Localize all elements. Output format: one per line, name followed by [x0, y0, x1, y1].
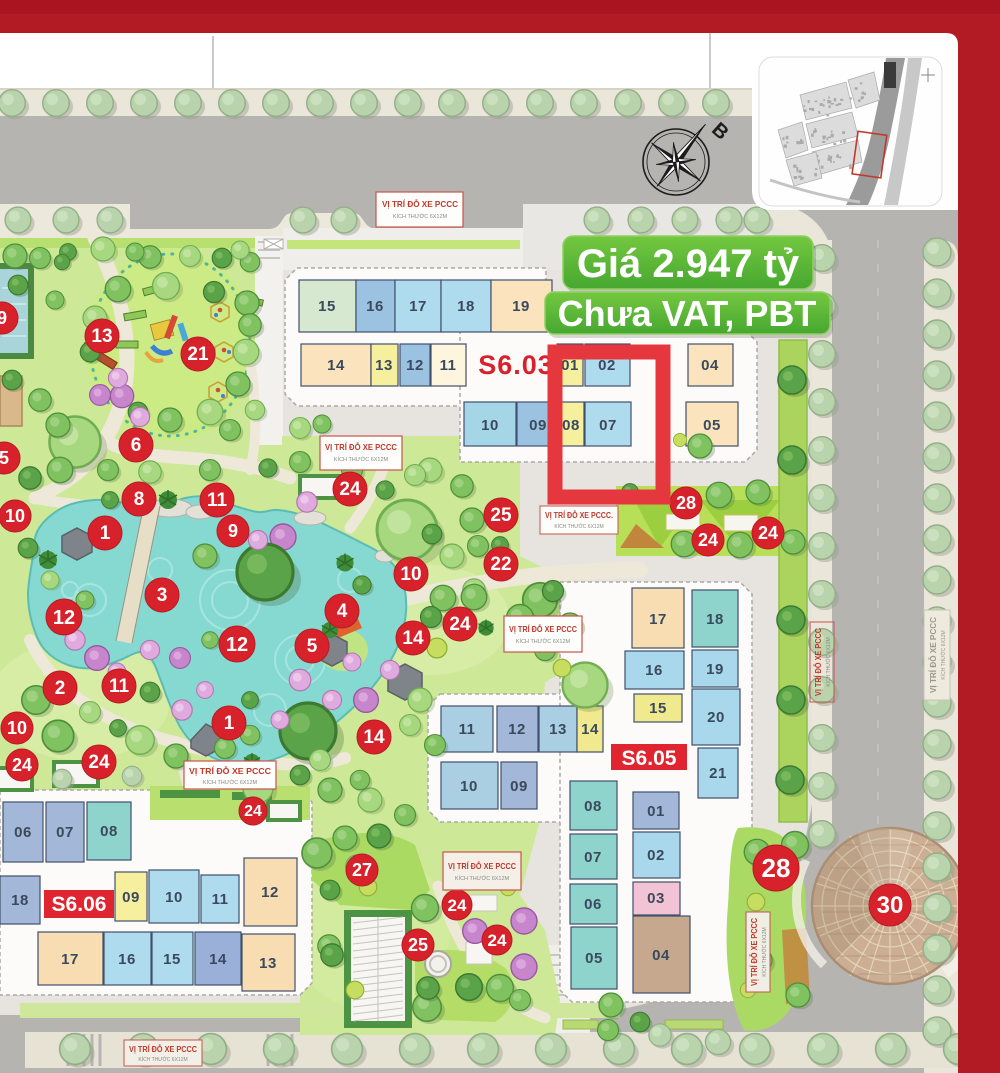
- svg-text:2: 2: [55, 678, 66, 699]
- svg-text:17: 17: [409, 298, 427, 315]
- svg-text:18: 18: [706, 611, 724, 628]
- svg-text:08: 08: [562, 417, 580, 434]
- svg-text:24: 24: [12, 755, 32, 775]
- svg-text:07: 07: [599, 417, 617, 434]
- svg-text:24: 24: [244, 803, 262, 820]
- svg-text:24: 24: [758, 523, 778, 543]
- svg-text:25: 25: [408, 935, 428, 955]
- svg-text:12: 12: [406, 357, 424, 374]
- svg-text:17: 17: [61, 951, 79, 968]
- svg-text:09: 09: [122, 889, 140, 906]
- svg-text:12: 12: [261, 884, 279, 901]
- svg-text:05: 05: [585, 950, 603, 967]
- svg-text:21: 21: [709, 765, 727, 782]
- svg-text:21: 21: [187, 344, 209, 365]
- svg-text:VỊ TRÍ ĐỖ XE PCCC: VỊ TRÍ ĐỖ XE PCCC: [509, 623, 577, 634]
- svg-text:19: 19: [706, 661, 724, 678]
- svg-text:06: 06: [584, 896, 602, 913]
- svg-text:KÍCH THƯỚC 6X12M: KÍCH THƯỚC 6X12M: [940, 630, 947, 679]
- svg-text:18: 18: [11, 892, 29, 909]
- svg-text:12: 12: [508, 721, 526, 738]
- svg-text:12: 12: [53, 607, 75, 629]
- svg-text:Chưa VAT, PBT: Chưa VAT, PBT: [558, 293, 817, 334]
- svg-text:14: 14: [209, 951, 227, 968]
- svg-text:24: 24: [339, 479, 361, 500]
- svg-text:14: 14: [363, 727, 385, 748]
- svg-text:19: 19: [512, 298, 530, 315]
- svg-text:VỊ TRÍ ĐỖ XE PCCC: VỊ TRÍ ĐỖ XE PCCC: [814, 628, 823, 696]
- svg-text:13: 13: [549, 721, 567, 738]
- svg-text:15: 15: [649, 700, 667, 717]
- svg-text:KÍCH THƯỚC 6X12M: KÍCH THƯỚC 6X12M: [138, 1056, 187, 1063]
- svg-text:16: 16: [366, 298, 384, 315]
- svg-text:14: 14: [581, 721, 599, 738]
- svg-text:11: 11: [109, 676, 130, 697]
- svg-text:1: 1: [224, 713, 235, 734]
- svg-text:KÍCH THƯỚC 6X12M: KÍCH THƯỚC 6X12M: [516, 638, 571, 645]
- svg-text:17: 17: [649, 611, 667, 628]
- svg-text:VỊ TRÍ ĐỖ XE PCCC: VỊ TRÍ ĐỖ XE PCCC: [129, 1045, 197, 1054]
- svg-text:08: 08: [100, 823, 118, 840]
- svg-text:13: 13: [375, 357, 393, 374]
- svg-text:16: 16: [118, 951, 136, 968]
- svg-text:05: 05: [703, 417, 721, 434]
- svg-text:10: 10: [400, 564, 421, 585]
- svg-text:10: 10: [165, 889, 183, 906]
- svg-text:14: 14: [327, 357, 345, 374]
- svg-text:9: 9: [228, 521, 238, 541]
- svg-text:1: 1: [100, 523, 111, 544]
- svg-text:28: 28: [676, 493, 696, 513]
- svg-text:13: 13: [91, 326, 112, 347]
- svg-text:5: 5: [307, 636, 318, 657]
- svg-text:14: 14: [402, 628, 424, 649]
- svg-text:04: 04: [652, 947, 670, 964]
- svg-text:S6.03: S6.03: [478, 350, 554, 380]
- svg-text:24: 24: [698, 530, 718, 550]
- svg-text:24: 24: [448, 896, 467, 915]
- svg-text:VỊ TRÍ ĐỖ XE PCCC: VỊ TRÍ ĐỖ XE PCCC: [325, 441, 397, 452]
- svg-text:VỊ TRÍ ĐỖ XE PCCC: VỊ TRÍ ĐỖ XE PCCC: [448, 860, 516, 871]
- svg-text:16: 16: [645, 662, 663, 679]
- svg-text:24: 24: [88, 752, 110, 773]
- svg-text:18: 18: [457, 298, 475, 315]
- svg-text:25: 25: [490, 505, 512, 526]
- svg-text:KÍCH THƯỚC 6X12M: KÍCH THƯỚC 6X12M: [455, 875, 510, 882]
- svg-text:VỊ TRÍ ĐỖ XE PCCC: VỊ TRÍ ĐỖ XE PCCC: [929, 617, 938, 693]
- svg-text:01: 01: [561, 357, 579, 374]
- svg-text:28: 28: [762, 853, 791, 883]
- svg-text:S6.05: S6.05: [622, 747, 677, 770]
- svg-text:04: 04: [701, 357, 719, 374]
- svg-text:12: 12: [226, 634, 248, 656]
- svg-text:Giá 2.947 tỷ: Giá 2.947 tỷ: [577, 242, 800, 286]
- svg-text:11: 11: [207, 490, 228, 511]
- svg-text:KÍCH THƯỚC 6X12M: KÍCH THƯỚC 6X12M: [761, 927, 768, 976]
- svg-text:11: 11: [212, 891, 229, 908]
- svg-text:3: 3: [157, 585, 168, 606]
- svg-text:30: 30: [877, 892, 904, 919]
- svg-text:VỊ TRÍ ĐỖ XE PCCC: VỊ TRÍ ĐỖ XE PCCC: [382, 198, 458, 209]
- svg-text:13: 13: [259, 955, 277, 972]
- svg-text:06: 06: [14, 824, 32, 841]
- svg-text:07: 07: [584, 849, 602, 866]
- svg-text:02: 02: [598, 357, 616, 374]
- svg-text:10: 10: [460, 778, 478, 795]
- svg-text:09: 09: [529, 417, 547, 434]
- svg-text:S6.06: S6.06: [52, 893, 107, 916]
- svg-text:24: 24: [488, 931, 507, 950]
- svg-text:VỊ TRÍ ĐỖ XE PCCC: VỊ TRÍ ĐỖ XE PCCC: [750, 918, 759, 986]
- svg-text:27: 27: [352, 860, 372, 880]
- svg-text:20: 20: [707, 709, 725, 726]
- svg-text:KÍCH THƯỚC 6X12M: KÍCH THƯỚC 6X12M: [554, 523, 603, 530]
- svg-text:9: 9: [0, 308, 7, 328]
- svg-text:11: 11: [440, 357, 457, 374]
- svg-text:10: 10: [5, 506, 25, 526]
- svg-text:VỊ TRÍ ĐỖ XE PCCC: VỊ TRÍ ĐỖ XE PCCC: [189, 765, 271, 776]
- svg-text:KÍCH THƯỚC 6X12M: KÍCH THƯỚC 6X12M: [203, 779, 258, 786]
- svg-text:KÍCH THƯỚC 6X12M: KÍCH THƯỚC 6X12M: [334, 456, 389, 463]
- svg-text:08: 08: [584, 798, 602, 815]
- svg-text:KÍCH THƯỚC 6X12M: KÍCH THƯỚC 6X12M: [825, 637, 832, 686]
- svg-text:VỊ TRÍ ĐỖ XE PCCC.: VỊ TRÍ ĐỖ XE PCCC.: [545, 511, 613, 520]
- svg-text:5: 5: [0, 448, 9, 468]
- svg-text:10: 10: [481, 417, 499, 434]
- svg-text:8: 8: [134, 489, 145, 510]
- svg-text:15: 15: [318, 298, 336, 315]
- svg-text:01: 01: [647, 803, 665, 820]
- svg-text:07: 07: [56, 824, 74, 841]
- svg-text:02: 02: [647, 847, 665, 864]
- svg-text:15: 15: [163, 951, 181, 968]
- svg-text:10: 10: [7, 718, 27, 738]
- svg-text:KÍCH THƯỚC 6X12M: KÍCH THƯỚC 6X12M: [393, 213, 448, 220]
- svg-text:11: 11: [459, 721, 476, 738]
- svg-text:6: 6: [131, 435, 142, 456]
- svg-text:22: 22: [490, 554, 511, 575]
- svg-text:03: 03: [647, 890, 665, 907]
- svg-text:24: 24: [449, 614, 471, 635]
- svg-text:4: 4: [337, 601, 348, 622]
- svg-text:09: 09: [510, 778, 528, 795]
